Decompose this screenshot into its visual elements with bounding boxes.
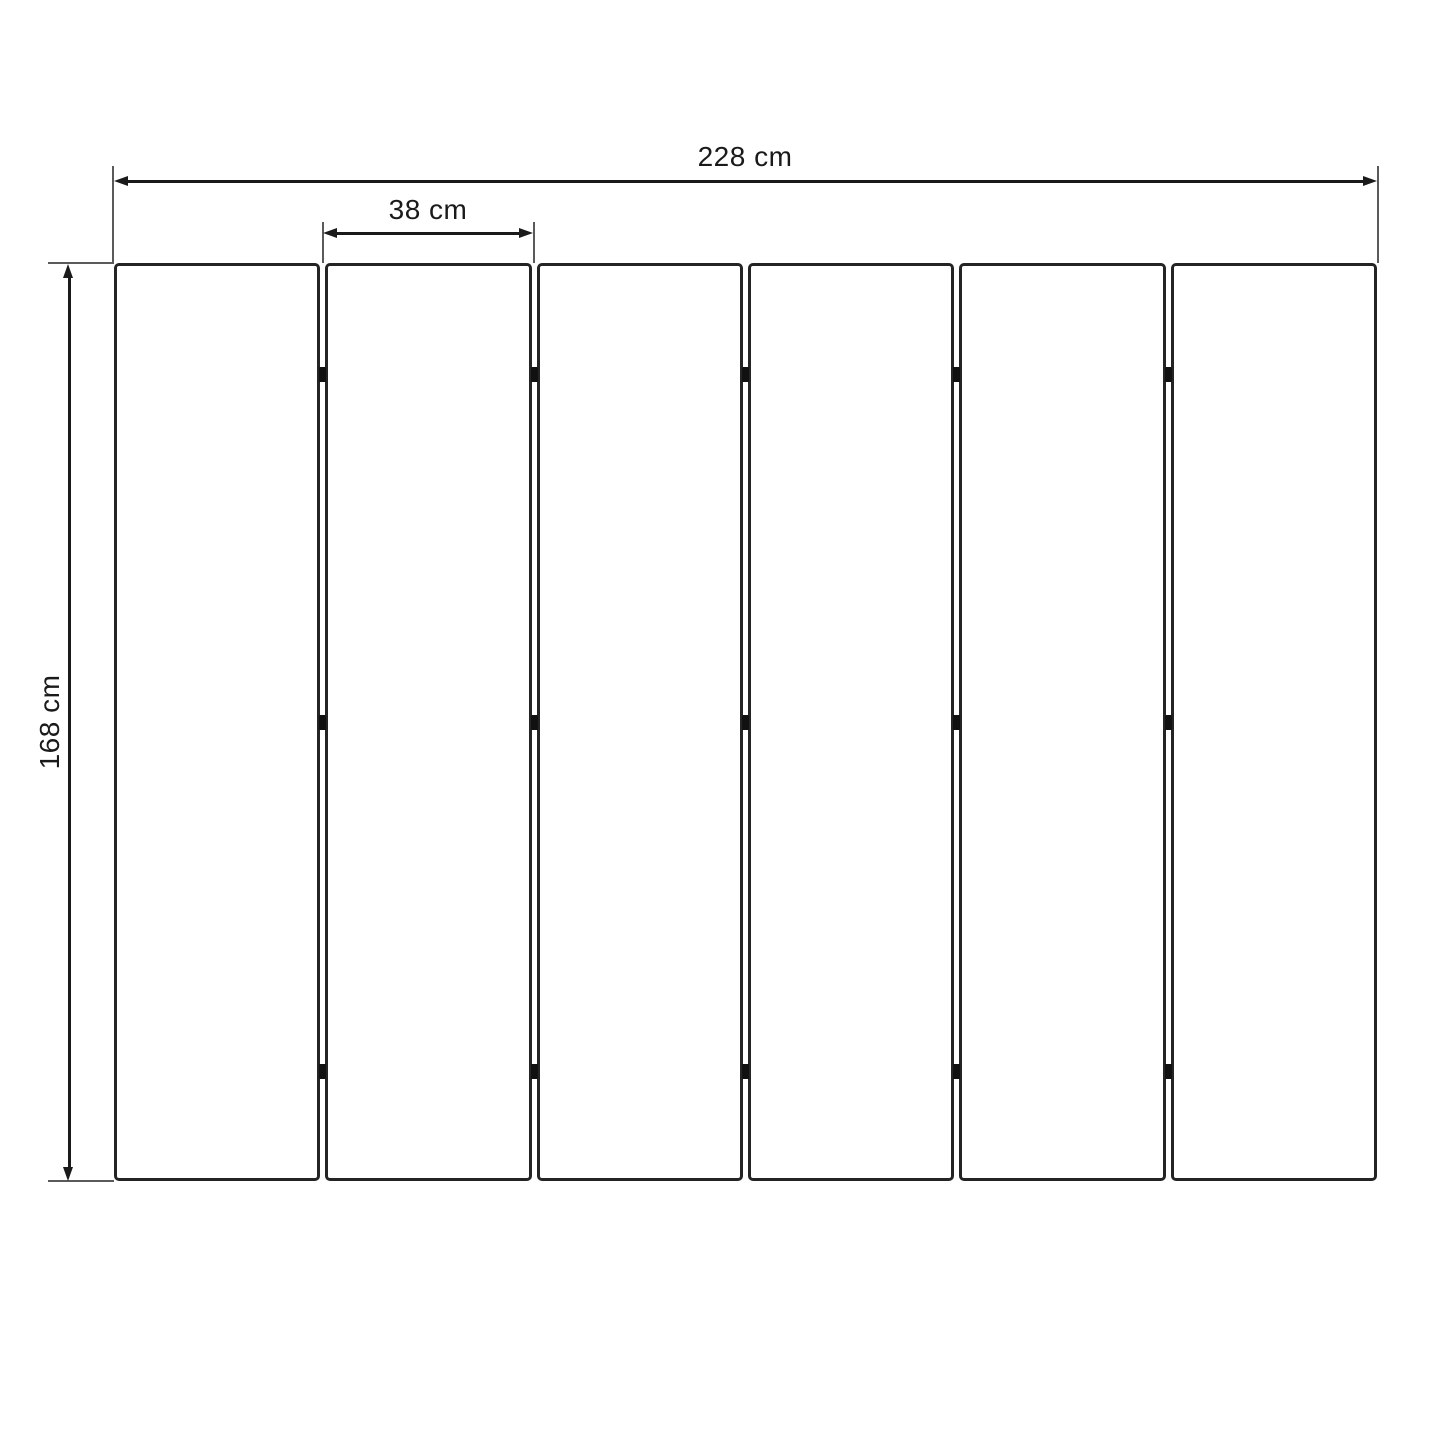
hinge-joint1-3 [319,1064,326,1079]
hinge-joint1-1 [319,367,326,382]
hinge-joint2-1 [531,367,538,382]
panel-5 [959,263,1165,1181]
panel-6 [1171,263,1377,1181]
extension-line-height-bottom [48,1180,114,1182]
panels-row [114,263,1377,1181]
arrowhead-up-icon [63,264,73,278]
panel-3 [537,263,743,1181]
hinge-joint5-2 [1165,715,1172,730]
height-label: 168 cm [34,675,66,770]
arrowhead-down-icon [63,1167,73,1181]
panel-2 [325,263,531,1181]
dimension-line-total-width [124,180,1366,183]
hinge-joint3-3 [742,1064,749,1079]
hinge-joint4-2 [953,715,960,730]
hinge-joint1-2 [319,715,326,730]
arrowhead-right-icon [519,228,533,238]
panel-4 [748,263,954,1181]
hinge-joint2-3 [531,1064,538,1079]
dimension-line-height [68,276,71,1169]
arrowhead-left-icon [323,228,337,238]
hinge-joint4-3 [953,1064,960,1079]
hinge-joint3-2 [742,715,749,730]
arrowhead-right-icon [1363,176,1377,186]
hinge-joint5-1 [1165,367,1172,382]
panel-width-label: 38 cm [328,194,528,226]
hinge-joint3-1 [742,367,749,382]
total-width-label: 228 cm [595,141,895,173]
arrowhead-left-icon [114,176,128,186]
dimension-diagram: 228 cm 38 cm 168 cm [0,0,1445,1445]
hinge-joint5-3 [1165,1064,1172,1079]
panel-1 [114,263,320,1181]
hinge-joint4-1 [953,367,960,382]
extension-line-total-right [1377,166,1379,263]
extension-line-height-top [48,262,114,264]
hinge-joint2-2 [531,715,538,730]
dimension-line-panel-width [334,232,522,235]
extension-line-panel-right [533,222,535,263]
